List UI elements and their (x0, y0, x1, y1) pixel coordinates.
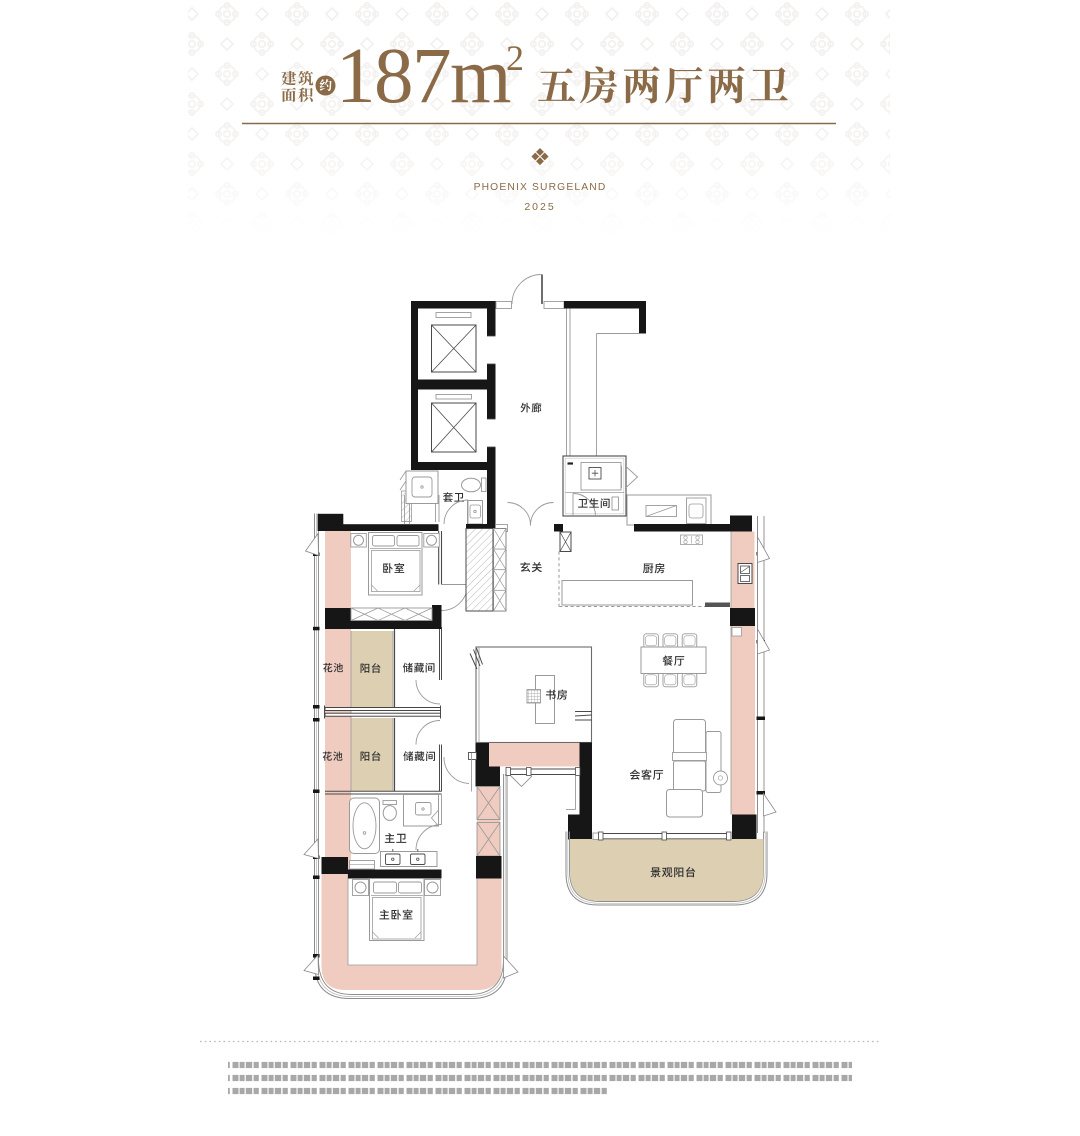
svg-text:2: 2 (506, 38, 524, 78)
svg-text:2025: 2025 (524, 201, 555, 213)
svg-text:PHOENIX SURGELAND: PHOENIX SURGELAND (474, 182, 607, 193)
svg-text:187m: 187m (336, 33, 511, 120)
